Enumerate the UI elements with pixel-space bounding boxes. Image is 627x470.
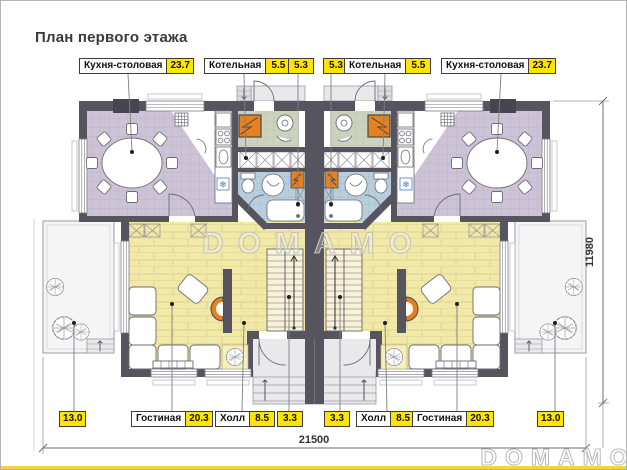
bottom-accent-strip — [1, 466, 626, 469]
area-badge: 20.3 — [467, 411, 493, 427]
area-badge: 5.3 — [288, 58, 314, 74]
callout-stairs-left: 3.3 — [277, 411, 303, 427]
room-label: Котельная — [204, 58, 266, 74]
callout-kitchen-right: Кухня-столовая 23.7 — [441, 58, 556, 74]
room-label: Холл — [356, 411, 391, 427]
area-badge: 3.3 — [324, 411, 350, 427]
room-label: Кухня-столовая — [79, 58, 167, 74]
area-badge: 20.3 — [186, 411, 212, 427]
area-badge: 13.0 — [537, 411, 564, 427]
area-badge: 23.7 — [529, 58, 555, 74]
room-label: Холл — [215, 411, 250, 427]
callout-boiler-right: Котельная 5.5 — [344, 58, 431, 74]
callout-kitchen-left: Кухня-столовая 23.7 — [79, 58, 194, 74]
room-label: Котельная — [344, 58, 406, 74]
area-badge: 5.5 — [406, 58, 431, 74]
room-label: Гостиная — [412, 411, 467, 427]
callout-stairs-right: 3.3 — [324, 411, 350, 427]
callout-boiler-left: Котельная 5.5 — [204, 58, 291, 74]
area-badge: 13.0 — [59, 411, 86, 427]
callout-hall-left: Холл 8.5 — [215, 411, 275, 427]
callout-terrace-right: 13.0 — [537, 411, 564, 427]
room-label: Гостиная — [131, 411, 186, 427]
dimension-depth-label: 11980 — [584, 237, 596, 267]
area-badge: 23.7 — [167, 58, 193, 74]
callout-living-left: Гостиная 20.3 — [131, 411, 213, 427]
callout-bath-left: 5.3 — [288, 58, 314, 74]
callout-hall-right: Холл 8.5 — [356, 411, 416, 427]
area-badge: 8.5 — [250, 411, 275, 427]
room-label: Кухня-столовая — [441, 58, 529, 74]
dimension-width-label: 21500 — [299, 434, 330, 446]
floor-plan-page: План первого этажа — [0, 0, 627, 470]
callout-terrace-left: 13.0 — [59, 411, 86, 427]
watermark-center: DOMAMO — [202, 227, 426, 260]
area-badge: 3.3 — [277, 411, 303, 427]
callout-living-right: Гостиная 20.3 — [412, 411, 494, 427]
